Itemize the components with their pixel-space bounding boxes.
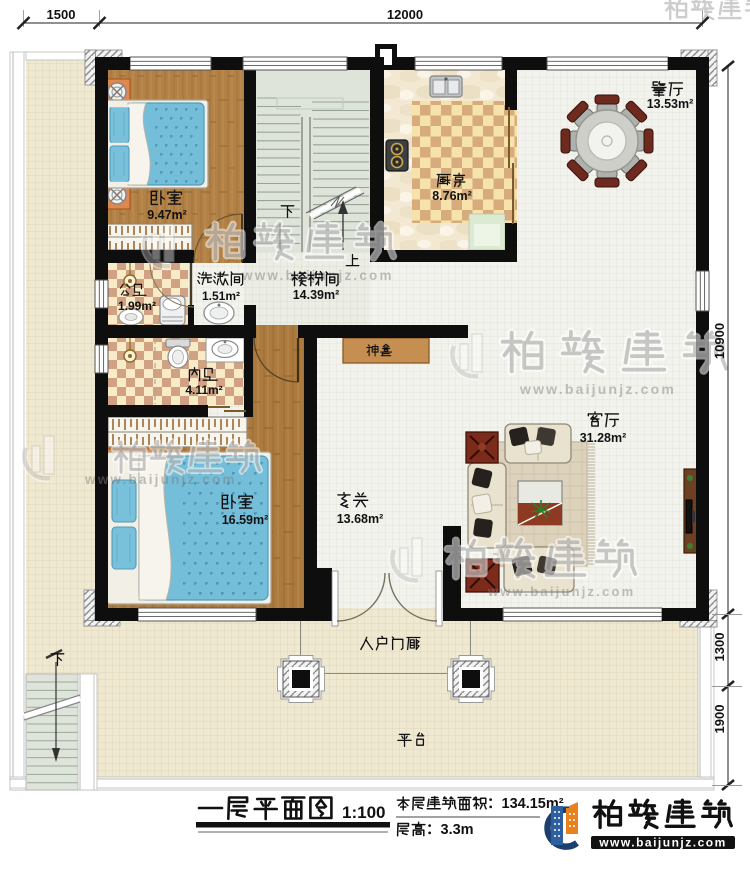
svg-text:4.11m²: 4.11m² [185, 383, 222, 397]
svg-text:10900: 10900 [712, 323, 727, 359]
svg-text:www.baijunjz.com: www.baijunjz.com [84, 472, 237, 487]
svg-text:16.59m²: 16.59m² [222, 513, 269, 527]
svg-text:1500: 1500 [47, 7, 76, 22]
svg-text:www.baijunjz.com: www.baijunjz.com [519, 381, 676, 397]
svg-text:1.99m²: 1.99m² [118, 299, 156, 313]
svg-text:14.39m²: 14.39m² [293, 288, 340, 302]
svg-text:1900: 1900 [712, 705, 727, 734]
svg-text:1:100: 1:100 [342, 803, 385, 822]
svg-text:：3.3m: ：3.3m [426, 822, 474, 838]
svg-text:13.68m²: 13.68m² [337, 512, 384, 526]
svg-text:1.51m²: 1.51m² [202, 289, 240, 303]
svg-text:1300: 1300 [712, 633, 727, 662]
svg-text:www.baijunjz.com: www.baijunjz.com [487, 584, 635, 599]
svg-text:www.baijunjz.com: www.baijunjz.com [598, 836, 727, 850]
svg-text:9.47m²: 9.47m² [147, 208, 187, 222]
svg-text:8.76m²: 8.76m² [432, 189, 472, 203]
svg-text:12000: 12000 [387, 7, 423, 22]
svg-text:www.baijunjz.com: www.baijunjz.com [241, 268, 394, 283]
svg-text:13.53m²: 13.53m² [647, 97, 694, 111]
svg-text:31.28m²: 31.28m² [580, 431, 627, 445]
